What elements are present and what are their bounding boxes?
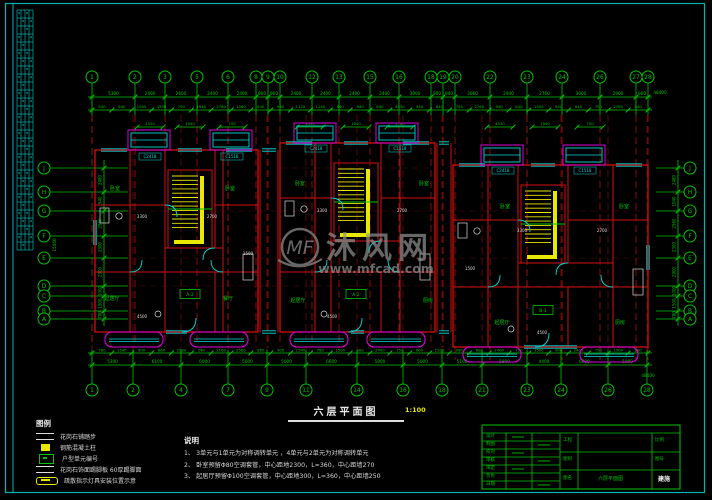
- svg-text:1120: 1120: [296, 104, 306, 109]
- svg-text:7: 7: [226, 388, 230, 394]
- svg-text:14: 14: [353, 388, 361, 394]
- svg-text:27: 27: [632, 75, 640, 81]
- svg-text:C: C: [688, 294, 692, 300]
- svg-text:2480: 2480: [672, 174, 677, 185]
- svg-text:780: 780: [317, 348, 325, 353]
- svg-text:2160: 2160: [216, 348, 226, 353]
- svg-text:5300: 5300: [107, 359, 118, 364]
- svg-text:2400: 2400: [291, 91, 302, 96]
- svg-text:600: 600: [476, 348, 484, 353]
- svg-text:4500: 4500: [327, 314, 338, 319]
- svg-text:F: F: [688, 234, 691, 240]
- svg-text:4400: 4400: [539, 359, 550, 364]
- svg-text:780: 780: [98, 348, 106, 353]
- svg-text:1: 1: [90, 388, 94, 394]
- svg-text:28: 28: [643, 388, 651, 394]
- titleblock-row-lead: 负责: [486, 475, 495, 480]
- svg-text:900: 900: [258, 91, 266, 96]
- svg-text:48400: 48400: [653, 90, 667, 95]
- svg-text:2400: 2400: [145, 91, 156, 96]
- svg-text:18: 18: [438, 388, 446, 394]
- svg-text:900: 900: [638, 91, 646, 96]
- svg-text:C1518: C1518: [579, 168, 592, 173]
- svg-text:D: D: [42, 284, 47, 290]
- svg-text:2300: 2300: [98, 241, 103, 252]
- concrete-column-icon: [41, 444, 50, 451]
- svg-text:4530: 4530: [157, 104, 167, 109]
- legend-item-label: 钢筋混凝土柱: [60, 443, 96, 452]
- svg-text:1940: 1940: [196, 104, 206, 109]
- svg-text:卧室: 卧室: [110, 185, 120, 192]
- legend-item-label: 疏散指示灯具安装位置示意: [64, 476, 136, 485]
- svg-text:J: J: [42, 166, 45, 172]
- svg-text:2560: 2560: [672, 218, 677, 229]
- svg-text:11: 11: [302, 388, 310, 394]
- svg-text:24: 24: [558, 75, 566, 81]
- svg-text:900: 900: [433, 91, 441, 96]
- svg-text:1500: 1500: [534, 104, 544, 109]
- plan-scale-label: 1:100: [405, 406, 426, 414]
- svg-text:www.mfcad.com: www.mfcad.com: [318, 261, 434, 276]
- titleblock-row-draft: 制图: [486, 443, 495, 448]
- titleblock-project-label: 工程: [563, 439, 572, 444]
- svg-text:2300: 2300: [672, 241, 677, 252]
- svg-text:1140: 1140: [316, 104, 326, 109]
- svg-text:26: 26: [596, 75, 604, 81]
- svg-text:1460: 1460: [236, 104, 246, 109]
- title-block: [482, 425, 680, 489]
- titleblock-stamp: 建施: [658, 477, 670, 483]
- svg-text:卧室: 卧室: [225, 185, 235, 192]
- svg-text:28: 28: [644, 75, 652, 81]
- svg-text:厨房: 厨房: [423, 297, 433, 304]
- note-line: 2、 卧室预留Φ80空调套管，中心距地2300，L=360，中心距墙270: [184, 460, 434, 472]
- svg-text:2700: 2700: [397, 208, 408, 213]
- svg-text:3300: 3300: [317, 208, 328, 213]
- svg-text:3300: 3300: [137, 214, 148, 219]
- svg-text:4500: 4500: [137, 314, 148, 319]
- svg-text:16: 16: [399, 388, 407, 394]
- note-line: 1、 3单元与1单元为对称调转单元 ，4单元与2单元为对称调转单元: [184, 448, 434, 460]
- titleblock-category-label: 图别: [563, 458, 572, 463]
- svg-text:1000: 1000: [98, 285, 103, 296]
- svg-text:卧室: 卧室: [419, 180, 429, 187]
- svg-text:640: 640: [118, 104, 126, 109]
- svg-text:640: 640: [337, 104, 345, 109]
- svg-text:10: 10: [276, 75, 284, 81]
- svg-text:MF: MF: [286, 237, 314, 259]
- svg-text:750: 750: [228, 121, 236, 126]
- svg-text:24: 24: [557, 388, 565, 394]
- svg-text:2900: 2900: [672, 266, 677, 277]
- svg-text:5100: 5100: [457, 359, 468, 364]
- svg-text:1500: 1500: [243, 251, 254, 256]
- svg-text:3000: 3000: [576, 91, 587, 96]
- svg-text:2900: 2900: [613, 91, 624, 96]
- svg-text:6: 6: [226, 75, 230, 81]
- plan-title: 六层平面图: [288, 400, 404, 422]
- svg-text:860: 860: [257, 348, 265, 353]
- titleblock-drawing-name: 六层平面图: [598, 477, 623, 482]
- svg-text:J: J: [688, 166, 691, 172]
- svg-text:餐厅: 餐厅: [223, 295, 233, 302]
- legend-item-label: 户型单元编号: [62, 454, 98, 463]
- plan-title-text: 六层平面图: [314, 407, 379, 418]
- legend-title: 图例: [36, 418, 211, 429]
- svg-text:C1518: C1518: [394, 146, 407, 151]
- notes-title: 说明: [184, 435, 434, 446]
- svg-text:3: 3: [163, 75, 167, 81]
- svg-text:C2418: C2418: [144, 154, 157, 159]
- titleblock-row-approve: 审定: [486, 467, 495, 472]
- svg-text:980: 980: [456, 348, 464, 353]
- svg-text:3000: 3000: [410, 91, 421, 96]
- svg-text:18: 18: [427, 75, 435, 81]
- svg-text:5000: 5000: [281, 359, 292, 364]
- svg-text:厨房: 厨房: [615, 319, 625, 326]
- svg-text:4530: 4530: [145, 121, 155, 126]
- svg-text:21: 21: [478, 388, 486, 394]
- svg-text:15: 15: [366, 75, 374, 81]
- svg-text:640: 640: [515, 104, 523, 109]
- svg-text:16: 16: [395, 75, 403, 81]
- titleblock-row-check: 校对: [486, 451, 495, 456]
- svg-text:19: 19: [439, 75, 447, 81]
- svg-text:2400: 2400: [349, 91, 360, 96]
- svg-text:1500: 1500: [672, 298, 677, 309]
- svg-text:20: 20: [451, 75, 459, 81]
- svg-text:23: 23: [523, 388, 531, 394]
- svg-text:900: 900: [277, 348, 285, 353]
- svg-text:3060: 3060: [467, 91, 478, 96]
- note-line: 3、 起居厅预留Φ100空调套管，中心距地300，L=360，中心距墙250: [184, 471, 434, 483]
- svg-text:起居厅: 起居厅: [290, 298, 305, 304]
- svg-text:22: 22: [486, 75, 494, 81]
- svg-text:1940: 1940: [185, 121, 195, 126]
- svg-text:600: 600: [416, 348, 424, 353]
- exit-light-icon: [36, 477, 58, 485]
- register-table: [17, 10, 33, 250]
- svg-text:900: 900: [270, 91, 278, 96]
- svg-text:起居厅: 起居厅: [494, 320, 509, 326]
- svg-text:13: 13: [335, 75, 343, 81]
- svg-text:750: 750: [456, 104, 464, 109]
- svg-text:2: 2: [133, 75, 137, 81]
- svg-text:2600: 2600: [176, 91, 187, 96]
- svg-text:900: 900: [356, 348, 364, 353]
- svg-text:2400: 2400: [207, 91, 218, 96]
- titleblock-row-design: 设计: [486, 435, 495, 440]
- svg-text:1500: 1500: [435, 348, 445, 353]
- svg-text:640: 640: [376, 104, 384, 109]
- svg-text:C1518: C1518: [226, 154, 239, 159]
- notes: 说明 1、 3单元与1单元为对称调转单元 ，4单元与2单元为对称调转单元 2、 …: [184, 435, 434, 483]
- svg-text:940: 940: [445, 91, 453, 96]
- svg-text:750: 750: [178, 104, 186, 109]
- svg-text:起居厅: 起居厅: [104, 296, 119, 302]
- svg-text:48400: 48400: [641, 373, 655, 378]
- svg-text:A-2: A-2: [352, 292, 360, 298]
- svg-text:卧室: 卧室: [500, 203, 510, 210]
- svg-text:750: 750: [586, 121, 594, 126]
- svg-text:1500: 1500: [98, 298, 103, 309]
- svg-text:290: 290: [198, 348, 206, 353]
- svg-text:940: 940: [277, 104, 285, 109]
- svg-text:2760: 2760: [216, 104, 226, 109]
- svg-text:A-2: A-2: [186, 292, 194, 298]
- svg-text:750: 750: [595, 348, 603, 353]
- svg-text:C2418: C2418: [310, 146, 323, 151]
- svg-text:1000: 1000: [672, 285, 677, 296]
- svg-text:6100: 6100: [152, 359, 163, 364]
- apartment-unit: [95, 130, 258, 347]
- granite-step-icon: [36, 433, 54, 440]
- legend-item-label: 花岗石铺踏步: [60, 432, 96, 441]
- svg-text:A: A: [688, 317, 692, 323]
- svg-text:860: 860: [158, 348, 166, 353]
- svg-text:780: 780: [98, 311, 103, 319]
- svg-text:1500: 1500: [613, 348, 623, 353]
- svg-text:2400: 2400: [320, 91, 331, 96]
- titleblock-drawing-label: 图名: [563, 477, 572, 482]
- svg-text:640: 640: [257, 104, 265, 109]
- svg-text:4530: 4530: [495, 121, 505, 126]
- svg-text:2: 2: [131, 388, 135, 394]
- svg-text:C: C: [42, 294, 46, 300]
- svg-text:卧室: 卧室: [619, 203, 629, 210]
- svg-text:2400: 2400: [237, 91, 248, 96]
- svg-text:G: G: [42, 209, 47, 215]
- svg-text:640: 640: [436, 104, 444, 109]
- titleblock-scale-label: 比例: [655, 439, 664, 444]
- svg-text:G: G: [688, 209, 693, 215]
- svg-text:5: 5: [195, 75, 199, 81]
- svg-text:1940: 1940: [672, 196, 677, 207]
- svg-text:940: 940: [555, 104, 563, 109]
- svg-text:E: E: [42, 256, 46, 262]
- svg-text:750: 750: [396, 348, 404, 353]
- svg-text:1500: 1500: [465, 266, 476, 271]
- svg-text:900: 900: [138, 348, 146, 353]
- svg-text:A: A: [42, 317, 46, 323]
- svg-text:1540: 1540: [296, 348, 306, 353]
- svg-text:750: 750: [595, 104, 603, 109]
- unit-number-icon: [39, 454, 54, 464]
- svg-text:940: 940: [634, 104, 642, 109]
- legend-item-label: 花岗石饰面踢脚板 60厚踢脚面: [60, 465, 142, 474]
- titleblock-number-label: 图号: [655, 458, 664, 463]
- svg-text:5900: 5900: [375, 359, 386, 364]
- svg-text:23: 23: [523, 75, 531, 81]
- skirting-icon: [36, 466, 54, 473]
- svg-text:4: 4: [179, 388, 183, 394]
- svg-text:1940: 1940: [540, 121, 550, 126]
- svg-text:9: 9: [266, 75, 270, 81]
- watermark: MF沐风网www.mfcad.com: [278, 229, 434, 276]
- svg-text:2940: 2940: [503, 91, 514, 96]
- svg-text:2760: 2760: [613, 104, 623, 109]
- svg-text:2400: 2400: [494, 348, 504, 353]
- svg-text:2760: 2760: [539, 91, 550, 96]
- svg-text:卧室: 卧室: [295, 180, 305, 187]
- svg-text:2480: 2480: [98, 174, 103, 185]
- svg-text:E: E: [688, 256, 692, 262]
- svg-text:15460: 15460: [52, 238, 57, 252]
- svg-text:9: 9: [265, 388, 269, 394]
- svg-text:2700: 2700: [597, 228, 608, 233]
- svg-text:3300: 3300: [517, 228, 528, 233]
- svg-text:4500: 4500: [537, 330, 548, 335]
- svg-text:2700: 2700: [207, 214, 218, 219]
- svg-text:2580: 2580: [236, 348, 246, 353]
- titleblock-row-date: 日期: [486, 483, 495, 488]
- svg-text:4530: 4530: [395, 104, 405, 109]
- svg-text:940: 940: [356, 104, 364, 109]
- svg-text:C2418: C2418: [497, 168, 510, 173]
- svg-text:2760: 2760: [474, 104, 484, 109]
- svg-text:26: 26: [604, 388, 612, 394]
- cad-sheet: 5300240026002400240090090024002400240024…: [0, 0, 712, 500]
- svg-text:940: 940: [495, 104, 503, 109]
- svg-text:640: 640: [575, 104, 583, 109]
- svg-text:1500: 1500: [137, 104, 147, 109]
- svg-text:1940: 1940: [351, 121, 361, 126]
- svg-text:780: 780: [672, 311, 677, 319]
- svg-text:2400: 2400: [379, 91, 390, 96]
- svg-text:940: 940: [416, 104, 424, 109]
- svg-text:H: H: [42, 190, 46, 196]
- svg-text:2580: 2580: [177, 348, 187, 353]
- svg-text:1540: 1540: [117, 348, 127, 353]
- svg-text:5000: 5000: [242, 359, 253, 364]
- svg-text:5300: 5300: [108, 91, 119, 96]
- svg-text:D: D: [688, 284, 693, 290]
- svg-text:1500: 1500: [335, 348, 345, 353]
- svg-text:2400: 2400: [375, 348, 385, 353]
- svg-text:6600: 6600: [326, 359, 337, 364]
- svg-text:6000: 6000: [199, 359, 210, 364]
- svg-text:5000: 5000: [417, 359, 428, 364]
- titleblock-row-review: 审核: [486, 459, 495, 464]
- svg-text:F: F: [42, 234, 45, 240]
- svg-text:940: 940: [98, 104, 106, 109]
- svg-text:8: 8: [254, 75, 258, 81]
- svg-text:B-1: B-1: [539, 308, 547, 314]
- svg-text:12: 12: [308, 75, 316, 81]
- svg-text:1: 1: [90, 75, 94, 81]
- svg-text:H: H: [688, 190, 692, 196]
- plan-title-underline: [288, 420, 404, 422]
